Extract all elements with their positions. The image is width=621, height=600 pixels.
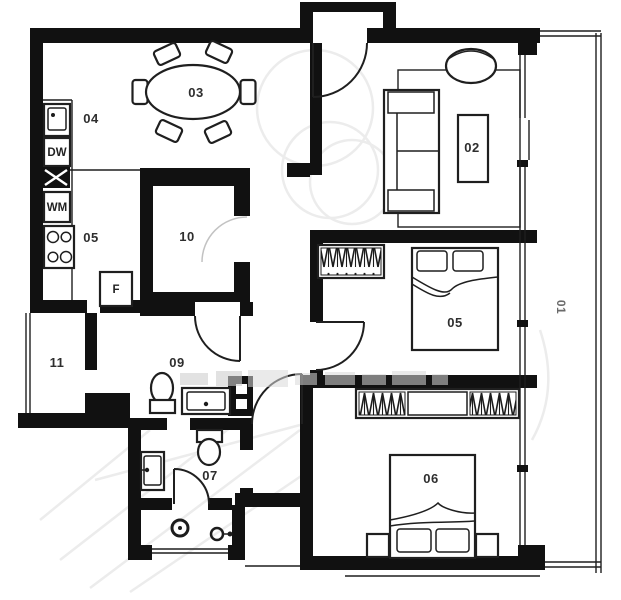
living-room-furniture	[384, 49, 520, 227]
room-label-dining: 03	[188, 85, 203, 100]
sofa	[384, 90, 439, 213]
bathroom-sink	[182, 388, 230, 414]
wardrobe-row	[356, 389, 519, 418]
toilet	[150, 373, 175, 413]
nightstand-left	[367, 534, 389, 557]
toilet	[197, 430, 222, 465]
bedroom-middle-door	[316, 322, 364, 370]
dishwasher-label: DW	[47, 147, 66, 159]
room-label-bathroom-guest: 09	[169, 355, 184, 370]
stove	[44, 226, 74, 268]
room-label-bathroom-main: 07	[202, 468, 217, 483]
lounge-chair	[446, 49, 496, 83]
dishwasher: DW	[44, 138, 70, 166]
bathroom-main-fixtures	[141, 430, 233, 540]
nightstand-right	[476, 534, 498, 557]
room-label-storage: 10	[179, 229, 194, 244]
fridge-label: F	[112, 284, 119, 296]
dining-chair	[205, 40, 233, 64]
floorplan-svg: DW WM F	[0, 0, 621, 600]
room-label-utility: 11	[50, 355, 65, 370]
washing-machine: WM	[44, 192, 70, 222]
washing-machine-label: WM	[47, 202, 67, 214]
bed	[412, 248, 498, 350]
room-label-bedroom-middle: 05	[447, 315, 462, 330]
bedroom-middle-furniture	[318, 245, 498, 350]
dining-chair	[241, 80, 256, 104]
room-label-living: 02	[464, 140, 479, 155]
dining-chair	[155, 119, 183, 143]
bathroom-guest-door	[195, 316, 240, 361]
dining-chair	[204, 120, 232, 144]
fridge: F	[100, 272, 132, 306]
room-label-balcony: 01	[554, 300, 568, 314]
floorplan-canvas: DW WM F	[0, 0, 621, 600]
room-label-kitchen-lower: 05	[83, 230, 98, 245]
dining-chair	[153, 42, 181, 66]
room-label-kitchen: 04	[83, 111, 99, 126]
bathroom-sink	[141, 452, 164, 490]
wardrobe	[318, 245, 384, 278]
kitchen-sink	[44, 104, 70, 136]
room-label-bedroom-bottom: 06	[423, 471, 438, 486]
service-duct	[42, 167, 70, 188]
